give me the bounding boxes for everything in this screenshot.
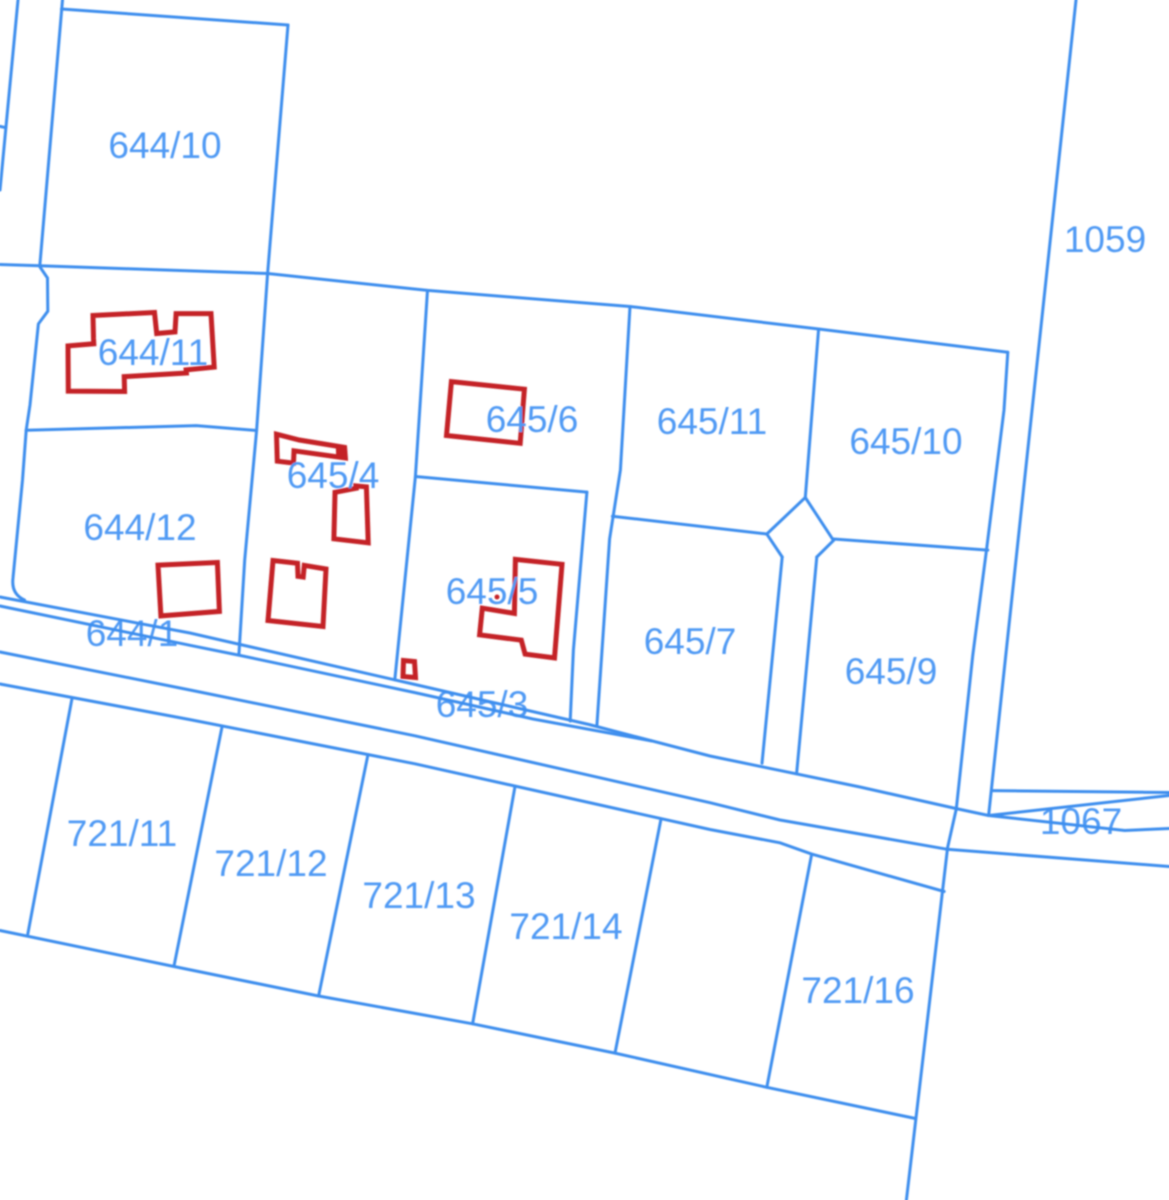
svg-text:721/14: 721/14 [509,906,622,947]
svg-text:645/11: 645/11 [657,401,767,442]
svg-text:721/13: 721/13 [362,875,475,916]
svg-text:1059: 1059 [1064,219,1146,260]
svg-text:721/16: 721/16 [801,970,914,1011]
svg-text:721/12: 721/12 [214,843,327,884]
svg-text:645/7: 645/7 [644,621,737,662]
svg-text:721/11: 721/11 [67,813,177,854]
svg-text:645/10: 645/10 [849,421,962,462]
svg-text:645/9: 645/9 [845,651,938,692]
svg-text:645/3: 645/3 [436,684,529,725]
svg-text:645/4: 645/4 [287,455,380,496]
svg-text:644/10: 644/10 [108,125,221,166]
svg-text:644/11: 644/11 [98,332,208,373]
svg-text:644/12: 644/12 [83,507,196,548]
svg-text:645/5: 645/5 [446,571,539,612]
svg-text:645/6: 645/6 [486,399,579,440]
